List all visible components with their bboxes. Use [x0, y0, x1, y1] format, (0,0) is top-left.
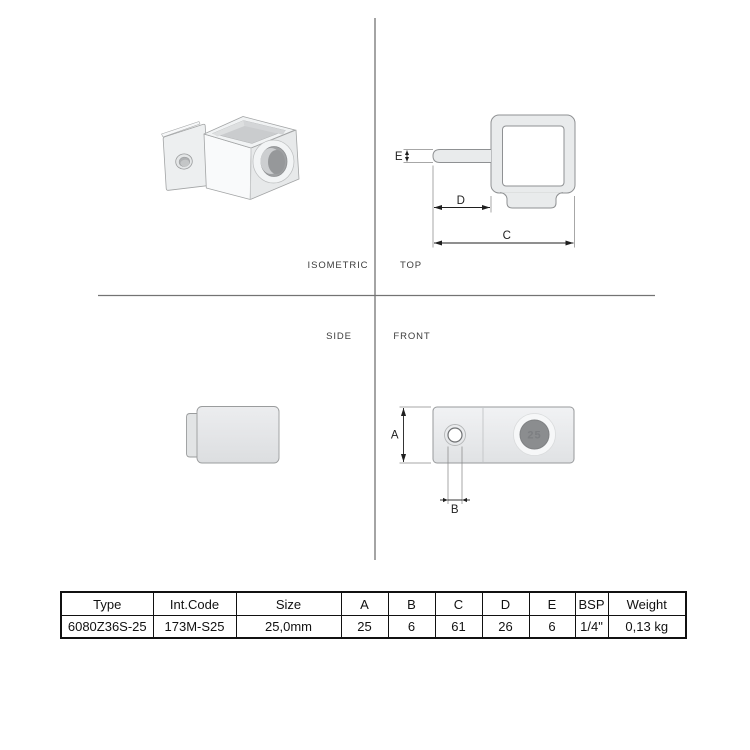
value-a: 25 — [341, 616, 388, 639]
value-type: 6080Z36S-25 — [61, 616, 153, 639]
dim-label-d: D — [457, 195, 466, 207]
side-view-flange-edge — [187, 414, 199, 458]
col-header-a: A — [341, 592, 388, 616]
top-view-label: TOP — [400, 260, 422, 271]
side-view — [187, 407, 280, 464]
value-size: 25,0mm — [236, 616, 341, 639]
side-view-label: SIDE — [326, 331, 352, 342]
value-int-code: 173M-S25 — [153, 616, 236, 639]
dim-label-b: B — [451, 504, 459, 516]
spec-table: Type Int.Code Size A B C D E BSP Weight … — [60, 591, 687, 639]
drawing-sheet: ISOMETRIC E D C TOP SIDE — [0, 0, 750, 750]
dim-label-a: A — [391, 430, 399, 442]
col-header-int-code: Int.Code — [153, 592, 236, 616]
col-header-type: Type — [61, 592, 153, 616]
front-hole-icon — [448, 428, 462, 442]
col-header-size: Size — [236, 592, 341, 616]
top-view — [404, 115, 576, 248]
col-header-e: E — [529, 592, 575, 616]
col-header-d: D — [482, 592, 529, 616]
value-bsp: 1/4" — [575, 616, 608, 639]
front-view-label: FRONT — [393, 331, 430, 342]
isometric-view-label: ISOMETRIC — [308, 260, 369, 271]
value-b: 6 — [388, 616, 435, 639]
top-view-boss — [500, 193, 563, 208]
bore-depth-shadow — [268, 150, 285, 174]
col-header-bsp: BSP — [575, 592, 608, 616]
value-c: 61 — [435, 616, 482, 639]
col-header-weight: Weight — [608, 592, 686, 616]
bore-size-marking: 25 — [527, 430, 541, 442]
isometric-view — [162, 117, 300, 200]
value-d: 26 — [482, 616, 529, 639]
spec-table-header-row: Type Int.Code Size A B C D E BSP Weight — [61, 592, 686, 616]
value-e: 6 — [529, 616, 575, 639]
top-view-square-bore — [503, 126, 565, 186]
top-view-flange-tab — [433, 150, 491, 163]
body-front-edge — [250, 148, 251, 200]
side-view-body — [197, 407, 279, 464]
col-header-b: B — [388, 592, 435, 616]
value-weight: 0,13 kg — [608, 616, 686, 639]
dim-label-e: E — [395, 151, 403, 163]
spec-table-value-row: 6080Z36S-25 173M-S25 25,0mm 25 6 61 26 6… — [61, 616, 686, 639]
col-header-c: C — [435, 592, 482, 616]
front-view — [400, 407, 575, 504]
dim-label-c: C — [503, 230, 512, 242]
